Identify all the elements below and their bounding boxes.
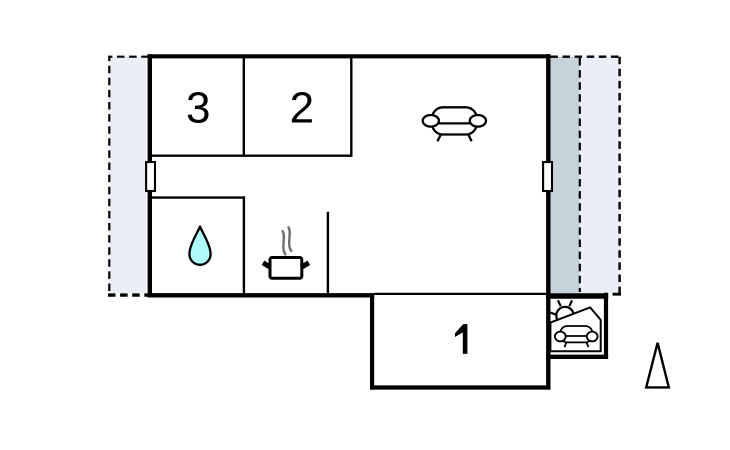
svg-text:2: 2 bbox=[290, 83, 314, 132]
svg-text:3: 3 bbox=[186, 83, 210, 132]
